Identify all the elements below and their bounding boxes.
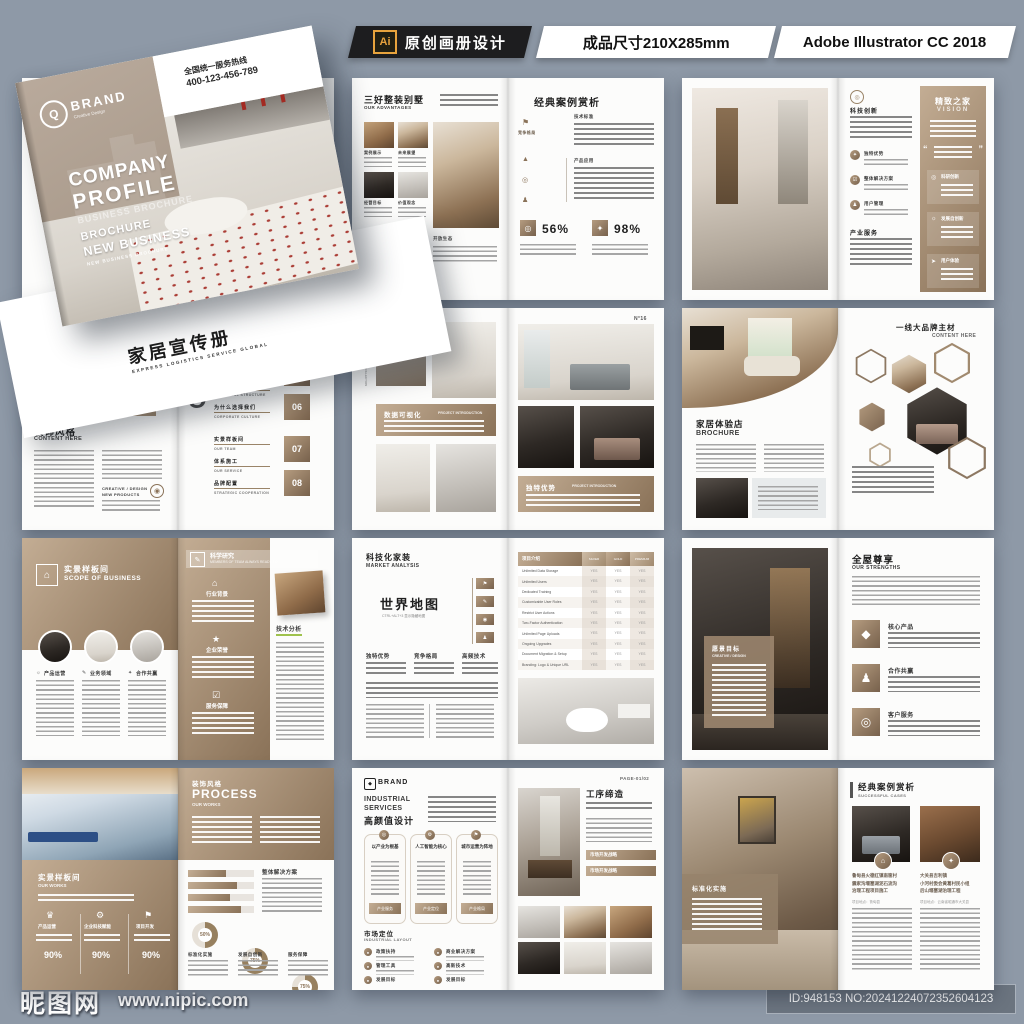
cases-left-page: 标准化实施: [682, 768, 838, 990]
text-lines: [574, 123, 654, 147]
toc-entry-cn: 为什么选择我们: [214, 404, 256, 411]
send-icon: ➤: [931, 258, 936, 265]
text-lines: [574, 167, 654, 201]
bathroom-photo: [518, 678, 654, 744]
building-icon: ⌂: [212, 578, 217, 588]
hexagon-solid: [858, 402, 886, 432]
table-row: Dedicated TrainingYESYESYES: [518, 587, 654, 597]
map-hint: CTRL+ALT+3 显示隐藏地图: [382, 614, 425, 619]
text-lines: [366, 704, 424, 740]
feature-label: Restrict User Actions: [518, 611, 582, 615]
spread-hexagon: 家居体验店 BROCHURE 一线大品牌主材 CONTENT HERE: [682, 308, 994, 530]
text-lines: [888, 720, 980, 736]
text-lines: [364, 207, 392, 217]
overlay-panel: 标准化实施: [682, 874, 778, 944]
bubble-card: ⚙ 人工智能为核心 产业定位: [410, 834, 452, 924]
case-line: 治理工程项目施工: [852, 887, 914, 895]
intro-banner: 数据可视化 PROJECT INTRODUCTION: [376, 404, 496, 436]
spread-works: 实景样板间 OUR WORKS ♛ 产品运营 90% ⚙ 企业科技赋能 90% …: [22, 768, 334, 990]
text-lines: [934, 146, 972, 160]
page-subtitle: BROCHURE: [696, 430, 740, 437]
people-icon: ♟: [522, 196, 528, 204]
handshake-icon: ✦: [128, 670, 132, 676]
text-lines: [930, 120, 976, 138]
spread-strengths: 愿景目标 CREATIVE / DESIGN 全屋尊享 OUR STRENGTH…: [682, 538, 994, 760]
card-icon: ◎: [379, 830, 389, 840]
circle-photo: [38, 630, 72, 664]
dark-bedroom-photo: [580, 406, 654, 468]
text-lines: [850, 116, 912, 140]
photo-stairs: [954, 824, 970, 854]
text-lines: [192, 712, 254, 736]
spread-industrial: ◆ BRAND INDUSTRIAL SERVICES 高颜值设计 ◎ 以产业为…: [352, 768, 664, 990]
star-icon: ✦: [948, 857, 954, 865]
text-lines: [520, 244, 576, 258]
page-label: PAGE-01/02: [620, 776, 649, 781]
brand-name: BRAND: [378, 779, 408, 786]
card-tab: 产业服务: [369, 903, 401, 914]
case-text: 鲁甸县火德红镇南筐村 震家沟堰塞湖泥石流沟 治理工程项目施工: [852, 872, 914, 895]
text-lines: [398, 157, 426, 167]
text-lines: [696, 444, 756, 472]
item-label: 服务保障: [206, 702, 228, 710]
column-label: 产品运营: [38, 924, 56, 930]
text-lines: [864, 184, 908, 192]
map-title: 世界地图: [380, 594, 440, 613]
star-icon: ✦: [853, 152, 857, 158]
text-lines: [417, 861, 445, 895]
site-url-watermark: www.nipic.com: [118, 990, 248, 1011]
item-label: 独特优势: [864, 151, 884, 157]
vision-panel: 精致之家 VISION “ ” ◎ 科研创新 ☼ 发展自创新 ➤ 用户体验: [920, 86, 986, 292]
text-lines: [941, 184, 973, 196]
progress-bar: [188, 894, 254, 901]
vision-card: ➤ 用户体验: [927, 254, 979, 288]
photo-bathtub: [566, 708, 608, 732]
page-subtitle: OUR WORKS: [192, 802, 221, 807]
item-label: 整体解决方案: [864, 176, 893, 182]
text-lines: [758, 486, 818, 510]
card-icon: ⚑: [471, 830, 481, 840]
text-lines: [260, 816, 320, 844]
text-lines: [288, 960, 328, 976]
dartboard-icon: ◎: [861, 715, 871, 729]
text-lines: [526, 494, 640, 506]
case-badge: ✦: [942, 852, 960, 870]
text-lines: [276, 642, 324, 742]
toc-entry-en: OUR TEAM: [214, 447, 236, 451]
size-badge-label: 成品尺寸210X285mm: [583, 32, 730, 53]
market-right-page: 项目介绍 SILVER GOLD PREMIUM Unlimited Data …: [508, 538, 664, 760]
table-title: 项目介绍: [522, 556, 540, 562]
text-lines: [262, 878, 322, 912]
photo-window: [540, 796, 560, 856]
yes-cell: YES: [606, 566, 630, 576]
case-location: 项目地点：云南省昭通市大关县: [920, 900, 969, 905]
divider: [429, 704, 430, 738]
photo-bed: [570, 364, 630, 390]
page-title: 一线大品牌主材: [896, 322, 956, 333]
case-line: 后山堰塞湖治理工程: [920, 887, 982, 895]
percent-value: 90%: [44, 950, 62, 960]
item-label: 企业荣誉: [206, 646, 228, 654]
text-lines: [852, 576, 980, 608]
feature-table: 项目介绍 SILVER GOLD PREMIUM Unlimited Data …: [518, 552, 654, 670]
grid-photo: [610, 906, 652, 938]
table-row: Customizable User RolesYESYESYES: [518, 597, 654, 607]
photo-bed: [916, 424, 958, 444]
donut-chart: 75%: [292, 974, 318, 990]
text-lines: [238, 960, 278, 976]
thumb-photo: [364, 172, 394, 198]
column-label: 高频技术: [462, 652, 486, 660]
check-icon: ☑: [853, 177, 857, 183]
guarantee-icon: ☑: [212, 690, 220, 701]
text-lines: [36, 934, 72, 944]
photo-tv: [690, 326, 724, 350]
trophy-icon: ♛: [46, 910, 54, 921]
section-label: 产品应用: [574, 158, 594, 164]
photo-shelf-glow: [770, 568, 810, 688]
item-icon: ●: [364, 962, 372, 970]
yes-cell: YES: [630, 639, 654, 649]
table-row: Ongoing UpgradesYESYESYES: [518, 639, 654, 649]
photo-desk: [528, 860, 572, 878]
strengths-left-page: 愿景目标 CREATIVE / DESIGN: [682, 538, 838, 760]
column-label: 独特优势: [366, 652, 390, 660]
text-lines: [446, 956, 484, 961]
donut-value: 50%: [198, 928, 212, 942]
hexagon-outline: [932, 342, 972, 384]
toc-entry-cn: 品牌配置: [214, 480, 238, 487]
text-lines: [371, 861, 399, 895]
user-icon: ♟: [483, 635, 487, 641]
text-lines: [84, 934, 120, 944]
text-lines: [864, 209, 908, 217]
text-lines: [764, 444, 824, 472]
products-label: NEW PRODUCTS: [102, 492, 140, 497]
text-lines: [941, 268, 973, 280]
vision-right-page: ◎ 科技创新 ✦ 独特优势 ☑ 整体解决方案 ♟ 用户管理 产业服务 精致之家 …: [838, 78, 994, 300]
strategy-bar: 市场开发战略: [586, 866, 656, 876]
title-bar: [850, 782, 853, 798]
strength-label: 合作共赢: [888, 666, 914, 675]
hallway-photo: [518, 406, 574, 468]
item-icon: ●: [364, 948, 372, 956]
toc-rule: [214, 444, 270, 445]
yes-cell: YES: [606, 618, 630, 628]
home-icon: ⌂: [44, 570, 50, 581]
column-label: 业务领域: [90, 670, 112, 677]
page-big-title: PROCESS: [192, 787, 258, 801]
photo-vanity: [618, 704, 650, 718]
text-lines: [192, 816, 252, 844]
text-lines: [102, 450, 162, 480]
progress-bar: [188, 870, 254, 877]
main-photo: [433, 122, 499, 228]
section-title: 科学研究: [210, 551, 234, 560]
hexagon-outline: [854, 348, 888, 384]
gear-icon: ⚙: [428, 832, 432, 838]
text-lines: [852, 466, 934, 496]
banner-subtitle: PROJECT INTRODUCTION: [572, 484, 616, 488]
market-left-page: 科技化家装 MARKET ANALYSIS 世界地图 CTRL+ALT+3 显示…: [352, 538, 508, 760]
bright-bedroom-photo: [518, 324, 654, 400]
column-label: 项目开发: [136, 924, 154, 930]
vision-card: ◎ 科研创新: [927, 170, 979, 204]
toc-number: 06: [284, 394, 310, 420]
overlay-panel: 愿景目标 CREATIVE / DESIGN: [704, 636, 774, 728]
toc-rule: [214, 466, 270, 467]
text-lines: [192, 600, 254, 624]
search-icon: ◎: [522, 176, 528, 184]
page-subtitle: OUR ADVANTAGES: [364, 105, 412, 110]
flag-icon: ⚑: [483, 581, 487, 587]
timeline-flag: ◉: [476, 614, 494, 625]
feature-label: Document Migration & Setup: [518, 652, 582, 656]
page-title: 经典案例赏析: [534, 94, 600, 109]
yes-cell: YES: [630, 618, 654, 628]
feature-label: Unlimited Users: [518, 580, 582, 584]
airport-photo: [22, 768, 178, 860]
col-header-label: PREMIUM: [635, 557, 649, 561]
text-lines: [586, 802, 652, 810]
item-icon: ●: [434, 976, 442, 984]
progress-fill: [188, 882, 237, 889]
thumb-photo: [398, 172, 428, 198]
dot-icon: ●: [437, 964, 439, 969]
table-row: Two-Factor AuthenticationYESYESYES: [518, 618, 654, 628]
yes-cell: YES: [582, 660, 606, 670]
feature-label: Unlimited Data Storage: [518, 569, 582, 573]
industrial-left-page: ◆ BRAND INDUSTRIAL SERVICES 高颜值设计 ◎ 以产业为…: [352, 768, 508, 990]
works-right-page: 装饰风格 PROCESS OUR WORKS 整体解决方案 50% 75% 75…: [178, 768, 334, 990]
office-photo: [518, 788, 580, 896]
page-title: 全屋尊享: [852, 552, 894, 566]
hexagon-photo: [890, 354, 928, 394]
industrial-right-page: PAGE-01/02 工序缔造 市场开发战略 市场开发战略: [508, 768, 664, 990]
spread-market: 科技化家装 MARKET ANALYSIS 世界地图 CTRL+ALT+3 显示…: [352, 538, 664, 760]
card-icon: ⚙: [425, 830, 435, 840]
item-label: 行业背景: [206, 590, 228, 598]
text-lines: [366, 662, 406, 674]
photo-window: [524, 330, 550, 388]
heading-cn: 高颜值设计: [364, 814, 414, 827]
yes-cell: YES: [606, 639, 630, 649]
research-icon: ◎: [931, 174, 936, 181]
text-lines: [888, 632, 980, 648]
yes-cell: YES: [582, 649, 606, 659]
case-line: 鲁甸县火德红镇南筐村: [852, 872, 914, 880]
quote-close: ”: [979, 144, 984, 154]
toc-rule: [214, 488, 270, 489]
text-lines: [364, 157, 392, 167]
spread-cases: 标准化实施 经典案例赏析 SUCCESSFUL CASES ⌂ ✦ 鲁甸县火德红…: [682, 768, 994, 990]
strength-icon-box: ◎: [852, 708, 880, 736]
science-icon-box: ✎: [190, 552, 205, 567]
page-subtitle: SCOPE OF BUSINESS: [64, 575, 141, 582]
rings-icon: ◎: [850, 90, 864, 104]
toc-entry-en: STRATEGIC COOPERATION: [214, 491, 269, 495]
page-title: 实景样板间: [64, 564, 109, 575]
timeline-flag: ♟: [476, 632, 494, 643]
honor-icon: ★: [212, 634, 220, 645]
panel-title: 愿景目标: [712, 644, 740, 653]
bedroom-photo: [376, 444, 430, 512]
vision-left-page: [682, 78, 838, 300]
case-text: 大关县吉利镇 小河村委会黄葛村民小组 后山堰塞湖治理工程: [920, 872, 982, 895]
text-lines: [436, 704, 494, 740]
col-header-label: SILVER: [589, 557, 599, 561]
vision-card-label: 科研创新: [941, 174, 959, 180]
case-line: 大关县吉利镇: [920, 872, 982, 880]
text-lines: [376, 956, 414, 961]
modules-icon: ◆: [861, 627, 870, 641]
yes-cell: YES: [582, 639, 606, 649]
thumb-label: 价值观念: [398, 200, 416, 206]
column-divider: [80, 914, 81, 974]
photo-cabinet: [778, 100, 808, 204]
hexagon-inner: [935, 345, 970, 382]
stat-value: 56%: [542, 222, 569, 236]
stat-icon-badge: ◎: [520, 220, 536, 236]
circle-photo: [84, 630, 118, 664]
column-label: 产品运营: [44, 670, 66, 677]
table-col-header: SILVER: [582, 552, 606, 566]
quote-open: “: [923, 144, 928, 154]
item-label: 管理工具: [376, 963, 396, 969]
globe-icon: ◉: [150, 484, 164, 498]
vision-card: ☼ 发展自创新: [927, 212, 979, 246]
dot-icon: ●: [367, 950, 369, 955]
material-3d-photo: [275, 570, 326, 615]
site-name: 昵图网: [20, 990, 101, 1018]
advantages-right-page: 经典案例赏析 ⚑ 竞争格局 ▲ ◎ ♟ 技术标准 产品应用 ◎ 56% ✦ 98…: [508, 78, 664, 300]
item-label: 高新技术: [446, 963, 466, 969]
page-title: 实景样板间: [38, 872, 81, 883]
timeline-rule: [472, 578, 473, 644]
doc-icon: ✎: [82, 670, 86, 676]
yes-cell: YES: [582, 566, 606, 576]
photo-seats: [28, 832, 98, 842]
text-lines: [366, 682, 498, 698]
scope-left-page: ⌂ 实景样板间 SCOPE OF BUSINESS ☼ 产品运营 ✎ 业务领域 …: [22, 538, 178, 760]
tech-icon: ⚙: [96, 910, 104, 921]
site-url: www.nipic.com: [118, 990, 248, 1010]
timeline-flag: ✎: [476, 596, 494, 607]
hexagon-inner: [856, 350, 886, 382]
text-lines: [128, 680, 166, 736]
stat-value: 98%: [614, 222, 641, 236]
photo-artwork: [738, 796, 776, 844]
photo-ceiling: [22, 768, 178, 794]
thumb-label: 未来展望: [398, 150, 416, 156]
progress-fill: [188, 906, 241, 913]
dot-icon: ●: [437, 950, 439, 955]
bubble-card: ◎ 以产业为根基 产业服务: [364, 834, 406, 924]
yes-cell: YES: [630, 597, 654, 607]
card-title: 以产业为根基: [369, 844, 401, 850]
vision-card-label: 用户体验: [941, 258, 959, 264]
item-label: 发展目标: [446, 977, 466, 983]
hexagon-left-page: 家居体验店 BROCHURE: [682, 308, 838, 530]
design-badge-label: 原创画册设计: [405, 32, 507, 53]
bedroom-photo: [436, 444, 496, 512]
percent-value: 90%: [142, 950, 160, 960]
text-lines: [462, 662, 498, 674]
star-icon: ✦: [597, 224, 604, 233]
yes-cell: YES: [606, 576, 630, 586]
hexagon-outline: [868, 442, 892, 468]
page-subtitle: MARKET ANALYSIS: [366, 563, 419, 569]
text-lines: [864, 159, 908, 167]
flag-icon: ⚑: [474, 832, 478, 838]
yes-cell: YES: [582, 587, 606, 597]
yes-cell: YES: [582, 618, 606, 628]
yes-cell: YES: [582, 608, 606, 618]
table-col-header: PREMIUM: [630, 552, 654, 566]
table-row: Restrict User ActionsYESYESYES: [518, 608, 654, 618]
bubble-card: ⚑ 城市运营为阵地 产业格局: [456, 834, 498, 924]
column-divider: [128, 914, 129, 974]
analysis-label: 技术分析: [276, 624, 302, 633]
column-label: 竞争格局: [414, 652, 438, 660]
globe-icon: ◉: [483, 617, 487, 623]
livingroom-photo: [682, 308, 838, 408]
photo-pillar: [716, 108, 738, 204]
item-label: 商业解决方案: [446, 949, 475, 955]
text-lines: [888, 676, 980, 692]
toc-number: 07: [284, 436, 310, 462]
text-lines: [82, 680, 120, 736]
card-title: 人工智能为核心: [415, 844, 447, 850]
page-title: 科技化家装: [366, 552, 411, 563]
yes-cell: YES: [630, 566, 654, 576]
page-subtitle: OUR STRENGTHS: [852, 565, 901, 571]
software-badge: Adobe Illustrator CC 2018: [774, 26, 1016, 58]
text-lines: [712, 664, 766, 718]
photo-bed: [594, 438, 640, 460]
donut-chart: 50%: [192, 922, 218, 948]
intro-banner: 独特优势 PROJECT INTRODUCTION: [518, 476, 654, 512]
item-icon: ✦: [850, 150, 860, 160]
cases-right-page: 经典案例赏析 SUCCESSFUL CASES ⌂ ✦ 鲁甸县火德红镇南筐村 震…: [838, 768, 994, 990]
divider: [566, 158, 567, 202]
percent-value: 90%: [92, 950, 110, 960]
text-lines: [586, 818, 652, 842]
solution-label: 整体解决方案: [262, 868, 297, 876]
hexagon-inner: [949, 439, 986, 478]
yes-cell: YES: [630, 649, 654, 659]
col-header-label: GOLD: [614, 557, 623, 561]
text-lines: [192, 656, 254, 680]
donut-label: 服务保障: [288, 952, 308, 958]
item-icon: ●: [434, 948, 442, 956]
target-icon: ◎: [382, 832, 386, 838]
green-underline: [276, 634, 302, 636]
text-lines: [384, 420, 484, 432]
item-icon: ●: [364, 976, 372, 984]
heading-en: SERVICES: [364, 805, 402, 812]
toc-entry-cn: 实景样板间: [214, 436, 244, 443]
text-lines: [463, 861, 491, 895]
caption-label: 开放生态: [433, 236, 453, 242]
heading-en: INDUSTRIAL: [364, 796, 410, 803]
toc-entry-en: OUR SERVICE: [214, 469, 242, 473]
text-lines: [102, 500, 160, 514]
progress-fill: [188, 870, 226, 877]
grid-photo: [518, 942, 560, 974]
